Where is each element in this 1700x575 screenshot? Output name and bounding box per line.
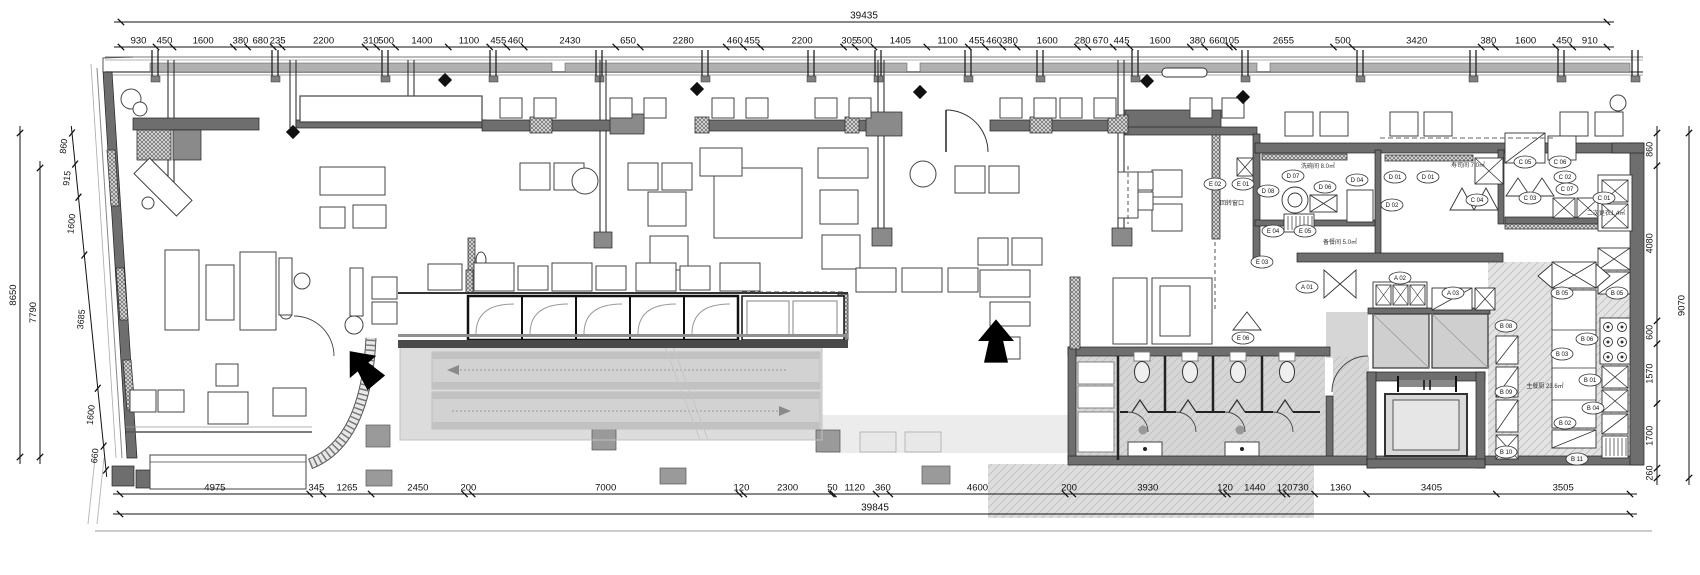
dim-value: 600 bbox=[1645, 325, 1655, 340]
dim-value: 2200 bbox=[313, 36, 334, 47]
equipment-tag: A 03 bbox=[1442, 287, 1464, 299]
dim-value: 305 bbox=[841, 36, 857, 47]
booth-seating bbox=[398, 263, 848, 348]
dim-value: 1405 bbox=[890, 36, 911, 47]
equipment-tag: B 04 bbox=[1582, 402, 1604, 414]
svg-text:E 01: E 01 bbox=[1237, 182, 1250, 188]
equipment-tag: C 06 bbox=[1549, 156, 1571, 168]
dim-value: 3685 bbox=[75, 309, 87, 330]
svg-text:C 05: C 05 bbox=[1519, 160, 1532, 166]
dim-value: 280 bbox=[1075, 36, 1091, 47]
equipment-tag: E 02 bbox=[1204, 178, 1226, 190]
equipment-tag: C 03 bbox=[1519, 192, 1541, 204]
dim-value: 450 bbox=[1556, 36, 1572, 47]
svg-text:C 03: C 03 bbox=[1524, 196, 1537, 202]
dim-total-top: 39435 bbox=[114, 11, 1614, 26]
equipment-tag: C 02 bbox=[1554, 171, 1576, 183]
svg-text:B 05: B 05 bbox=[1556, 291, 1569, 297]
escalators bbox=[400, 347, 822, 440]
dim-value: 460 bbox=[508, 36, 524, 47]
dim-value: 1600 bbox=[193, 36, 214, 47]
dim-value: 4975 bbox=[204, 483, 225, 494]
dim-value: 3505 bbox=[1553, 483, 1574, 494]
svg-text:B 11: B 11 bbox=[1571, 457, 1584, 463]
dim-value: 1600 bbox=[1037, 36, 1058, 47]
equipment-tag: C 04 bbox=[1466, 194, 1488, 206]
equipment-tag: E 06 bbox=[1232, 332, 1254, 344]
dim-value: 380 bbox=[233, 36, 249, 47]
dim-value: 4600 bbox=[967, 483, 988, 494]
equipment-tag: B 08 bbox=[1495, 320, 1517, 332]
svg-text:D 01: D 01 bbox=[1422, 175, 1435, 181]
dim-value: 930 bbox=[131, 36, 147, 47]
dim-value: 1265 bbox=[336, 483, 357, 494]
dim-value: 4080 bbox=[1645, 233, 1655, 253]
dim-total-right: 9070 bbox=[1677, 126, 1693, 485]
dim-value: 7790 bbox=[28, 302, 39, 323]
svg-text:B 09: B 09 bbox=[1500, 390, 1513, 396]
equipment-tag: B 05 bbox=[1606, 287, 1628, 299]
dim-total-left-inner: 7790 bbox=[28, 161, 43, 464]
dim-chain-bottom: 4975345126524502007000120230050112036046… bbox=[113, 483, 1637, 498]
svg-text:E 05: E 05 bbox=[1299, 229, 1312, 235]
dim-value: 680 bbox=[252, 36, 268, 47]
dim-value: 460 bbox=[986, 36, 1002, 47]
svg-text:B 10: B 10 bbox=[1500, 450, 1513, 456]
equipment-tag: D 01 bbox=[1417, 171, 1439, 183]
dim-value: 380 bbox=[1189, 36, 1205, 47]
dim-value: 9070 bbox=[1677, 295, 1688, 316]
room-label: 主餐厨 23.6㎡ bbox=[1526, 382, 1563, 390]
dim-value: 105 bbox=[1223, 36, 1239, 47]
svg-text:A 03: A 03 bbox=[1447, 291, 1460, 297]
dim-value: 445 bbox=[1114, 36, 1130, 47]
equipment-tag: B 05 bbox=[1551, 287, 1573, 299]
svg-text:B 01: B 01 bbox=[1584, 378, 1597, 384]
svg-text:E 06: E 06 bbox=[1237, 336, 1250, 342]
equipment-tag: E 05 bbox=[1294, 225, 1316, 237]
dim-value: 2450 bbox=[407, 483, 428, 494]
dim-value: 120 bbox=[1217, 483, 1233, 494]
svg-text:A 01: A 01 bbox=[1301, 285, 1314, 291]
dim-value: 1600 bbox=[1150, 36, 1171, 47]
dim-value: 1360 bbox=[1330, 483, 1351, 494]
dim-value: 660 bbox=[89, 448, 101, 464]
dim-value: 1700 bbox=[1645, 426, 1655, 446]
equipment-tag: B 03 bbox=[1551, 348, 1573, 360]
svg-text:C 06: C 06 bbox=[1554, 160, 1567, 166]
svg-text:A 02: A 02 bbox=[1394, 276, 1407, 282]
dim-value: 1600 bbox=[85, 404, 97, 425]
svg-text:B 02: B 02 bbox=[1559, 421, 1572, 427]
room-label: 二次更衣1.4㎡ bbox=[1587, 209, 1625, 217]
dim-value: 2655 bbox=[1273, 36, 1294, 47]
equipment-tag: B 10 bbox=[1495, 446, 1517, 458]
room-label: 洗碗间 8.0㎡ bbox=[1301, 162, 1335, 170]
svg-text:B 05: B 05 bbox=[1611, 291, 1624, 297]
dim-value: 1100 bbox=[459, 36, 479, 47]
svg-text:D 01: D 01 bbox=[1389, 175, 1402, 181]
dim-chain-right: 860408060015701700260 bbox=[1645, 126, 1661, 485]
dim-value: 455 bbox=[969, 36, 985, 47]
dim-value: 860 bbox=[58, 138, 70, 154]
equipment-tag: C 07 bbox=[1556, 183, 1578, 195]
svg-text:B 06: B 06 bbox=[1581, 337, 1594, 343]
dim-value: 260 bbox=[1645, 466, 1655, 481]
dim-value: 3930 bbox=[1137, 483, 1158, 494]
svg-text:D 08: D 08 bbox=[1262, 189, 1275, 195]
svg-text:E 04: E 04 bbox=[1267, 229, 1280, 235]
equipment-tag: D 04 bbox=[1346, 174, 1368, 186]
dim-value: 1400 bbox=[411, 36, 432, 47]
equipment-tag: B 06 bbox=[1576, 333, 1598, 345]
dim-value: 670 bbox=[1093, 36, 1109, 47]
dim-value: 2280 bbox=[673, 36, 694, 47]
equipment-tag: D 08 bbox=[1257, 185, 1279, 197]
dim-total-bottom: 39845 bbox=[113, 503, 1637, 518]
svg-text:B 04: B 04 bbox=[1587, 406, 1600, 412]
dim-value: 650 bbox=[620, 36, 636, 47]
equipment-tag: D 06 bbox=[1314, 181, 1336, 193]
dim-value: 1120 bbox=[844, 483, 864, 494]
dim-value: 455 bbox=[744, 36, 760, 47]
dim-value: 50 bbox=[827, 483, 838, 494]
dim-value: 455 bbox=[490, 36, 506, 47]
equipment-tag: E 04 bbox=[1262, 225, 1284, 237]
dim-value: 200 bbox=[460, 483, 476, 494]
equipment-tag: A 01 bbox=[1296, 281, 1318, 293]
svg-text:E 02: E 02 bbox=[1209, 182, 1222, 188]
dim-value: 345 bbox=[308, 483, 324, 494]
floor-plan-sheet: 9304501600380680235220031050014001100455… bbox=[0, 0, 1700, 575]
dim-value: 8650 bbox=[8, 284, 19, 305]
svg-text:D 02: D 02 bbox=[1386, 203, 1399, 209]
equipment-tag: D 02 bbox=[1381, 199, 1403, 211]
svg-text:D 06: D 06 bbox=[1319, 185, 1332, 191]
dim-value: 39435 bbox=[850, 11, 878, 22]
dim-value: 730 bbox=[1293, 483, 1309, 494]
equipment-tag: B 01 bbox=[1579, 374, 1601, 386]
dim-value: 2200 bbox=[792, 36, 813, 47]
dim-value: 910 bbox=[1582, 36, 1598, 47]
equipment-tag: B 02 bbox=[1554, 417, 1576, 429]
dim-value: 2430 bbox=[559, 36, 580, 47]
dim-value: 380 bbox=[1480, 36, 1496, 47]
svg-text:D 07: D 07 bbox=[1287, 174, 1300, 180]
dim-value: 460 bbox=[727, 36, 743, 47]
dim-value: 200 bbox=[1061, 483, 1077, 494]
equipment-tag: C 05 bbox=[1514, 156, 1536, 168]
dim-value: 860 bbox=[1645, 142, 1655, 157]
dim-value: 7000 bbox=[595, 483, 616, 494]
dim-value: 120 bbox=[1277, 483, 1293, 494]
svg-text:C 02: C 02 bbox=[1559, 175, 1572, 181]
room-label: 备餐间 5.0㎡ bbox=[1323, 238, 1357, 246]
dim-total-left-outer: 8650 bbox=[8, 126, 23, 464]
equipment-tag: B 11 bbox=[1566, 453, 1588, 465]
dim-value: 450 bbox=[157, 36, 173, 47]
svg-text:C 07: C 07 bbox=[1561, 187, 1574, 193]
equipment-tag: D 07 bbox=[1282, 170, 1304, 182]
dim-value: 1570 bbox=[1645, 364, 1655, 384]
equipment-tag: E 01 bbox=[1232, 178, 1254, 190]
dim-value: 39845 bbox=[861, 503, 889, 514]
dim-value: 235 bbox=[270, 36, 286, 47]
svg-text:B 03: B 03 bbox=[1556, 352, 1569, 358]
equipment-tag: C 01 bbox=[1593, 192, 1615, 204]
floor-plan-drawing: 9304501600380680235220031050014001100455… bbox=[0, 0, 1700, 575]
dim-chain-left: 860915160036851600660 bbox=[58, 126, 109, 477]
room-label: 回转窗口 bbox=[1220, 199, 1244, 207]
dim-value: 310 bbox=[363, 36, 379, 47]
svg-text:E 03: E 03 bbox=[1256, 260, 1269, 266]
dim-value: 1440 bbox=[1244, 483, 1265, 494]
dim-value: 1100 bbox=[937, 36, 957, 47]
svg-text:C 04: C 04 bbox=[1471, 198, 1484, 204]
room-label: 寿司间 7.0㎡ bbox=[1451, 161, 1485, 169]
dim-value: 360 bbox=[875, 483, 891, 494]
dim-value: 3405 bbox=[1421, 483, 1442, 494]
dim-value: 380 bbox=[1002, 36, 1018, 47]
equipment-tag: D 01 bbox=[1384, 171, 1406, 183]
dim-value: 120 bbox=[733, 483, 749, 494]
dim-chain-top: 9304501600380680235220031050014001100455… bbox=[114, 36, 1614, 51]
dim-value: 500 bbox=[1335, 36, 1351, 47]
equipment-tag: A 02 bbox=[1389, 272, 1411, 284]
dim-value: 1600 bbox=[65, 213, 77, 234]
svg-text:C 01: C 01 bbox=[1598, 196, 1611, 202]
equipment-tag: B 09 bbox=[1495, 386, 1517, 398]
equipment-tag: E 03 bbox=[1251, 256, 1273, 268]
dim-value: 2300 bbox=[777, 483, 798, 494]
svg-text:D 04: D 04 bbox=[1351, 178, 1364, 184]
elevator bbox=[1367, 314, 1488, 468]
dim-value: 915 bbox=[61, 170, 73, 186]
svg-text:B 08: B 08 bbox=[1500, 324, 1513, 330]
dim-value: 3420 bbox=[1406, 36, 1427, 47]
dim-value: 500 bbox=[857, 36, 873, 47]
dim-value: 1600 bbox=[1515, 36, 1536, 47]
dim-value: 500 bbox=[378, 36, 394, 47]
